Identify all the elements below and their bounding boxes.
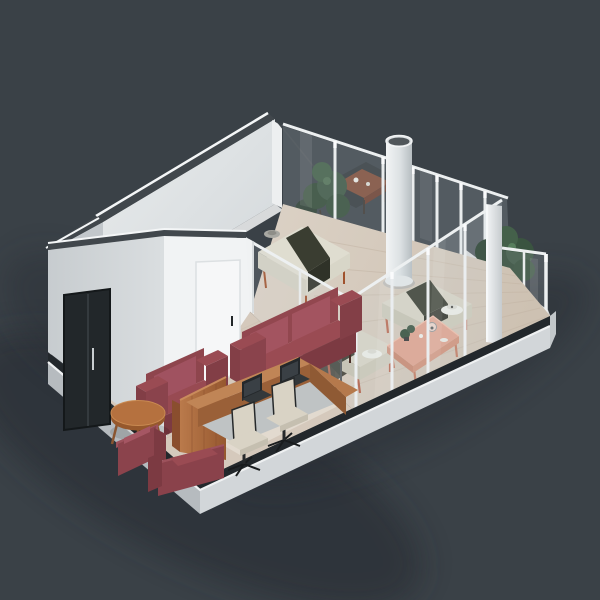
armrest-side <box>230 344 240 384</box>
isometric-office-render: Isometric 3D cutaway render of a small o… <box>0 0 600 600</box>
entry-door-dark-glass <box>64 289 110 430</box>
wall-pier <box>486 204 502 344</box>
glass-reflection <box>420 170 432 242</box>
table-top <box>111 401 165 426</box>
desk-panel-side <box>172 400 180 452</box>
wing-wall-end-cap <box>272 120 282 208</box>
glass-reflection <box>300 131 312 208</box>
column-top-hollow <box>389 138 410 146</box>
scene-canvas: Isometric 3D cutaway render of a small o… <box>0 0 600 600</box>
bowl-inner <box>268 231 277 235</box>
armrest <box>148 452 162 492</box>
